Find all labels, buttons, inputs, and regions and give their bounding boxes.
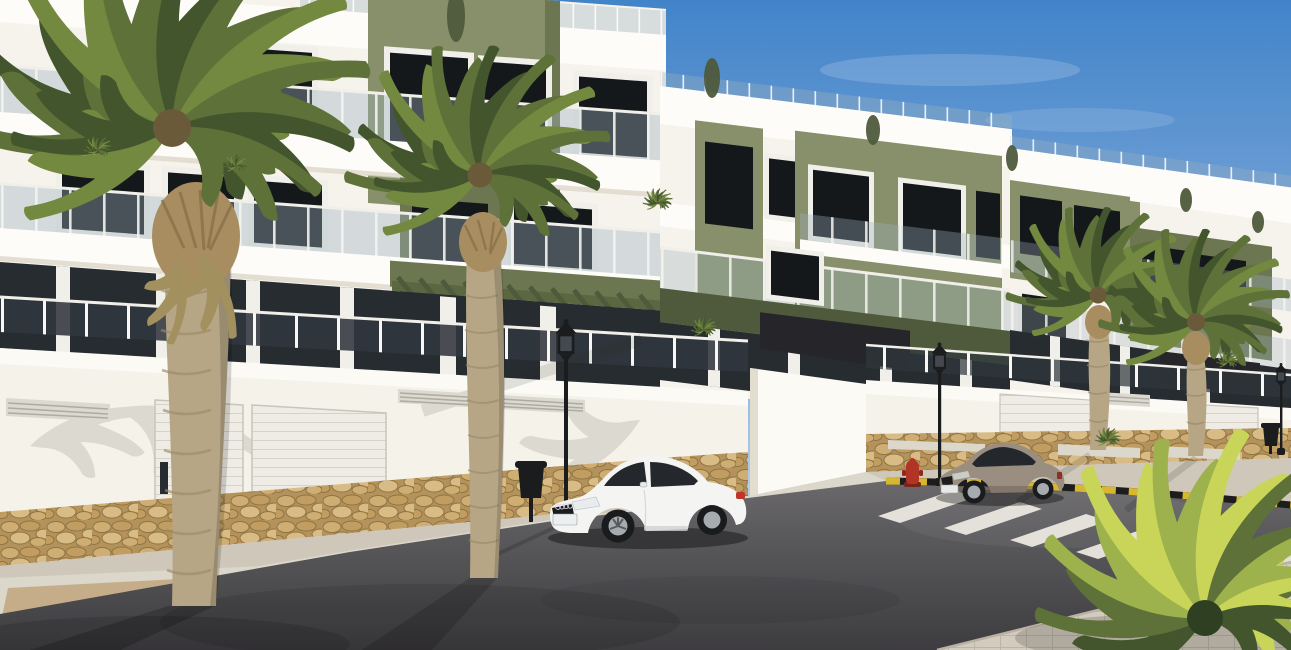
windows-floor-2 <box>766 245 824 306</box>
street-scene <box>0 0 1291 650</box>
apartment-building-middle <box>660 72 1012 431</box>
